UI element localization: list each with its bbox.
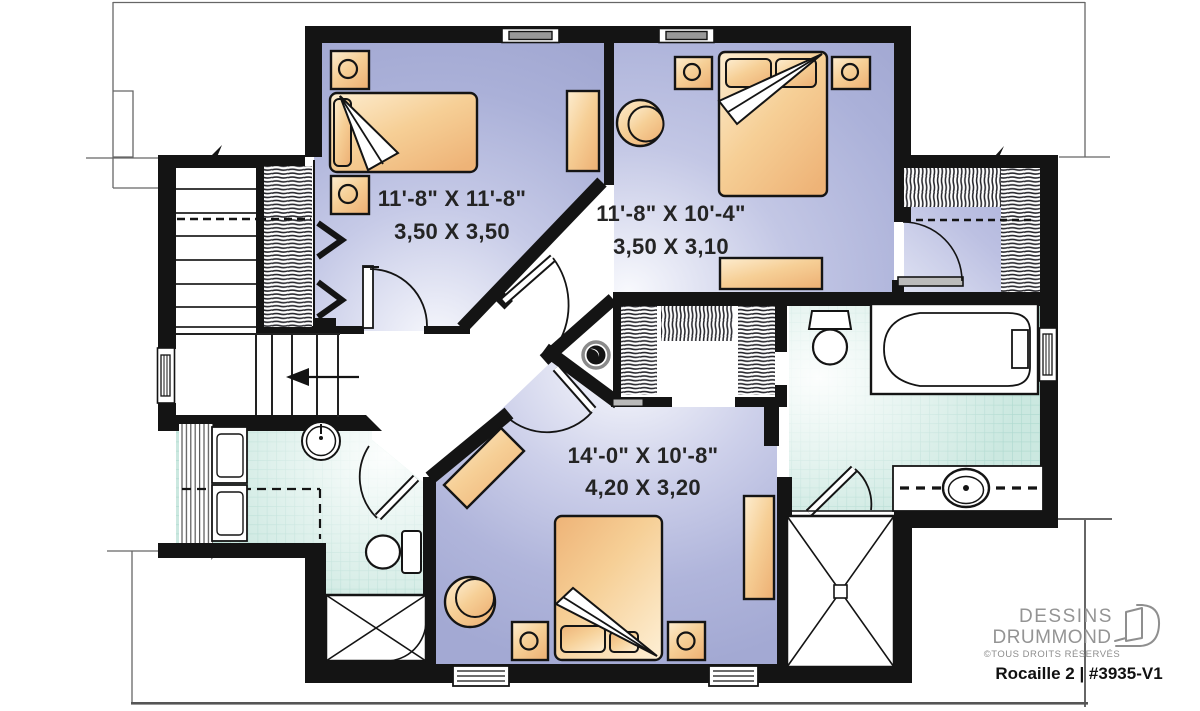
svg-text:3,50 X 3,10: 3,50 X 3,10 bbox=[613, 234, 729, 259]
svg-text:11'-8" X 11'-8": 11'-8" X 11'-8" bbox=[378, 186, 526, 211]
svg-text:DRUMMOND: DRUMMOND bbox=[992, 627, 1111, 648]
svg-text:14'-0" X 10'-8": 14'-0" X 10'-8" bbox=[568, 443, 719, 468]
svg-text:DESSINS: DESSINS bbox=[1019, 606, 1113, 627]
svg-text:4,20 X 3,20: 4,20 X 3,20 bbox=[585, 475, 701, 500]
svg-text:3,50 X 3,50: 3,50 X 3,50 bbox=[394, 219, 510, 244]
svg-text:11'-8" X 10'-4": 11'-8" X 10'-4" bbox=[596, 201, 746, 226]
svg-text:©TOUS DROITS RÉSERVÉS: ©TOUS DROITS RÉSERVÉS bbox=[984, 649, 1120, 660]
svg-text:Rocaille 2 | #3935-V1: Rocaille 2 | #3935-V1 bbox=[995, 664, 1162, 683]
